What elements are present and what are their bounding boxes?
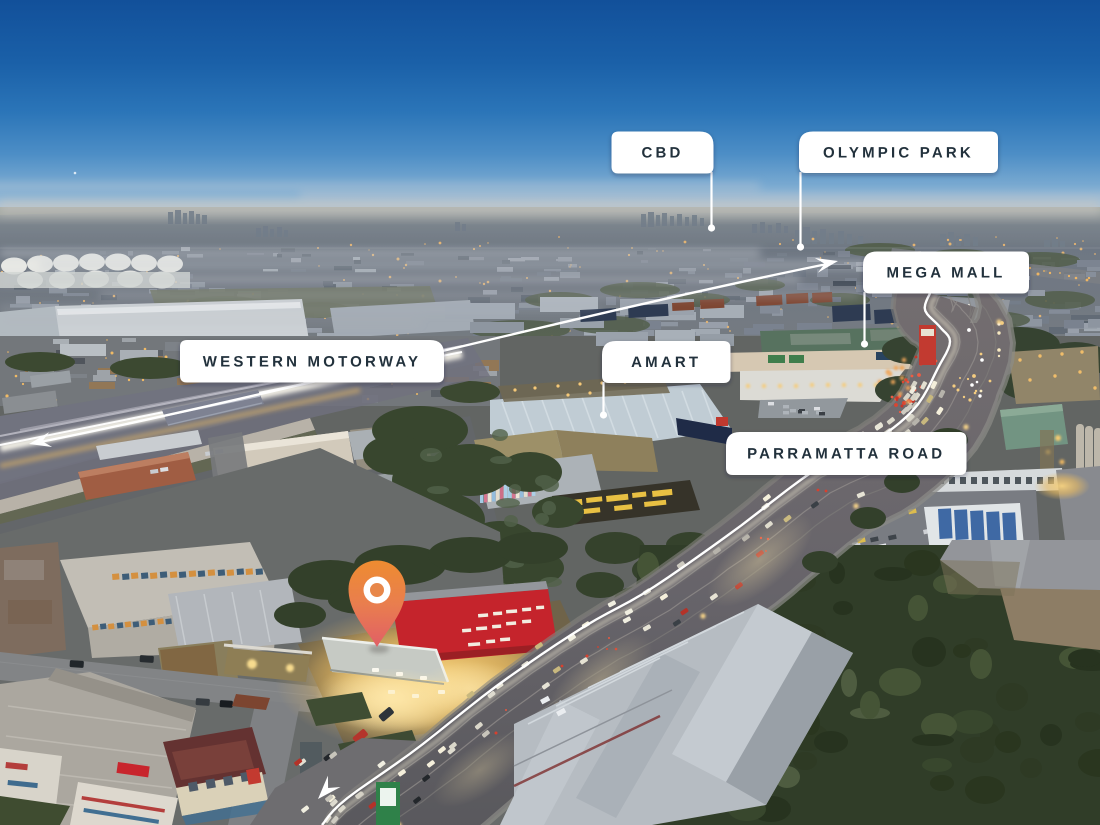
svg-text:WESTERN MOTORWAY: WESTERN MOTORWAY: [203, 353, 421, 370]
svg-text:PARRAMATTA ROAD: PARRAMATTA ROAD: [747, 446, 945, 463]
svg-text:AMART: AMART: [631, 354, 701, 371]
svg-text:OLYMPIC PARK: OLYMPIC PARK: [823, 144, 974, 161]
svg-text:MEGA MALL: MEGA MALL: [886, 265, 1005, 282]
svg-text:CBD: CBD: [641, 145, 683, 162]
